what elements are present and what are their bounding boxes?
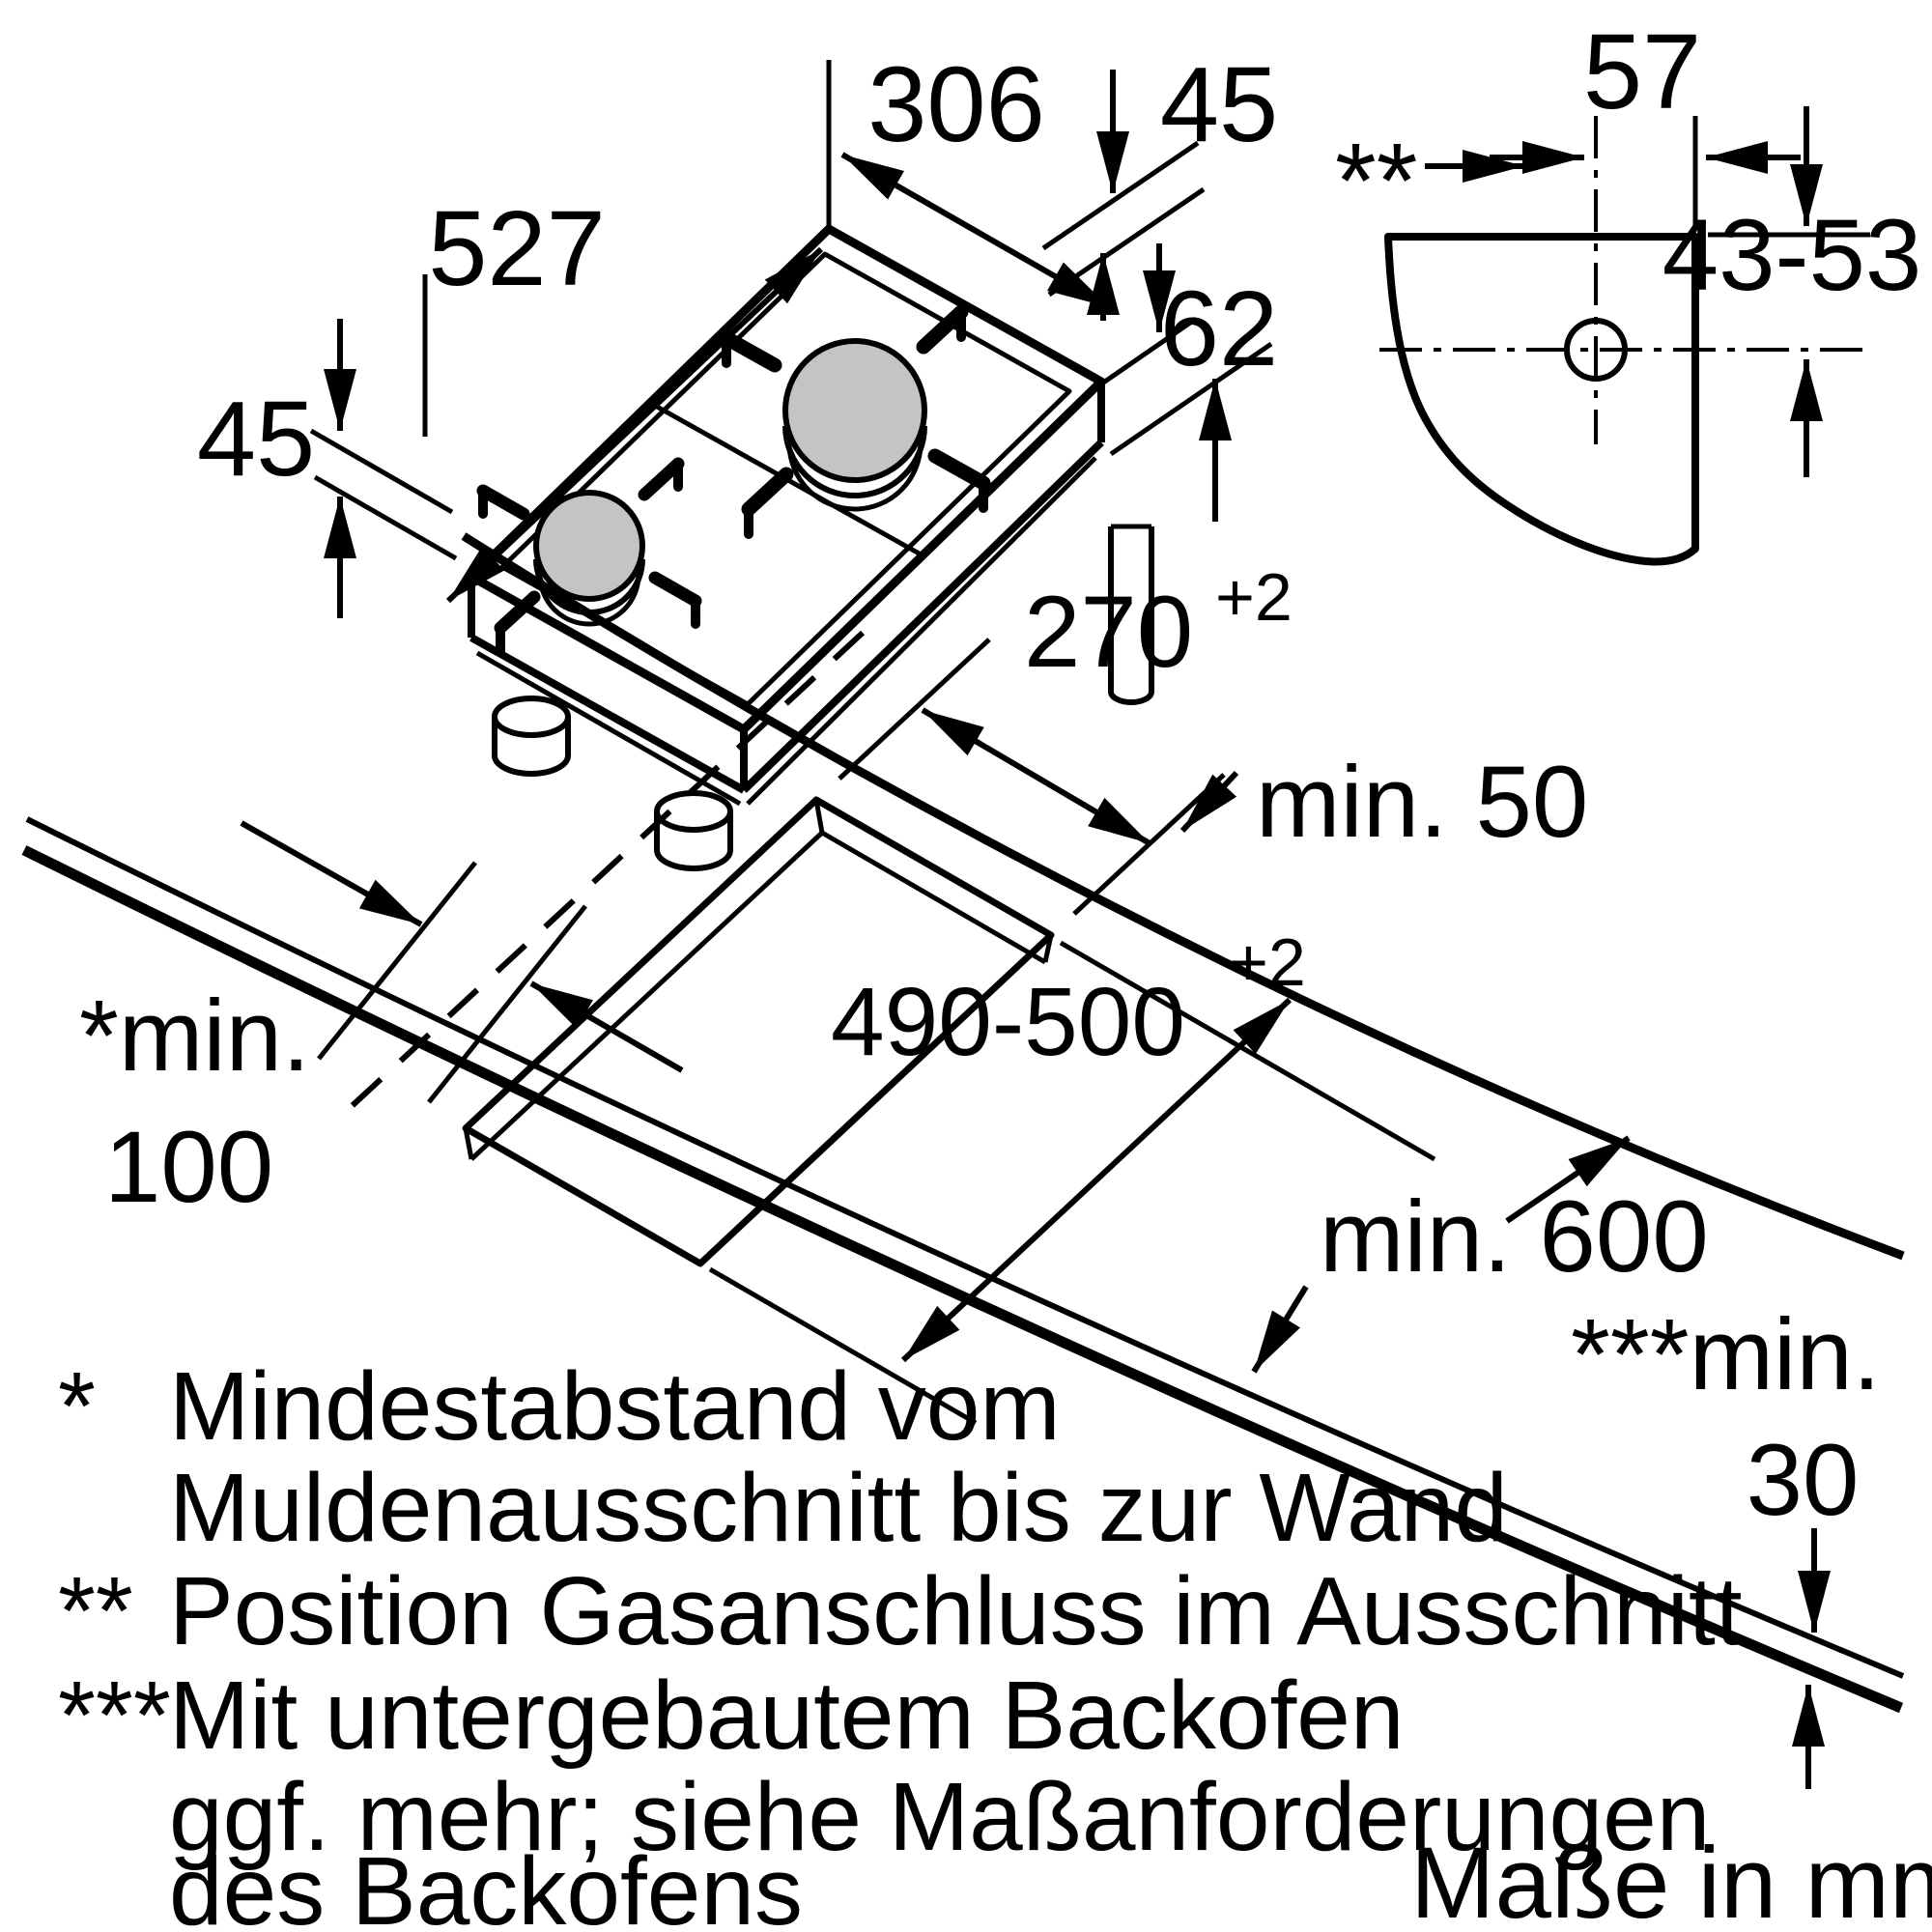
footnote-marker: *** [58, 1662, 171, 1770]
arrow-right-down [241, 823, 421, 924]
footnote-text: Mit untergebautem Backofen [169, 1662, 1405, 1770]
burner-small [536, 493, 642, 599]
clearance-wall-label: *min. [79, 980, 310, 1093]
dim-45-left-label: 45 [197, 380, 315, 498]
oven-clearance-label: ***min. [1571, 1298, 1881, 1411]
oven-clearance-value: 30 [1747, 1424, 1860, 1537]
gas-position-marker: ** [1335, 122, 1418, 241]
dim-490-500-label: 490-500 [831, 968, 1185, 1076]
dim-45-top-label: 45 [1160, 45, 1278, 164]
arrow-down-left [1254, 1287, 1306, 1372]
footnote-marker: * [58, 1352, 96, 1461]
cutout-inner-wall [471, 833, 822, 1159]
worktop-depth-label: min. 600 [1320, 1180, 1709, 1293]
reference-line [315, 477, 456, 558]
footnote-text: Position Gasanschluss im Ausschnitt [169, 1557, 1743, 1665]
footnote-text: des Backofens [169, 1837, 803, 1932]
dim-57-label: 57 [1583, 13, 1701, 131]
reference-line [1043, 143, 1198, 248]
control-knob [495, 698, 568, 774]
extension-line [1074, 775, 1224, 914]
cutout-corner-panel [1388, 237, 1695, 561]
dim-306-label: 306 [867, 45, 1045, 164]
footnote-text: Mindestabstand vom [169, 1352, 1061, 1461]
gas-connection-detail: 57 ** 43-53 [1335, 13, 1921, 561]
arrow-down-left [1182, 773, 1236, 831]
extension-line [839, 639, 989, 779]
dim-490-500-tolerance: +2 [1229, 924, 1306, 1000]
hob-dimensions: 306 45 62 527 45 [197, 45, 1278, 618]
dim-43-53-label: 43-53 [1662, 199, 1922, 312]
clearance-wall-value: 100 [104, 1111, 273, 1224]
dim-62-label: 62 [1160, 270, 1278, 388]
reference-line [311, 431, 452, 512]
burner-large [785, 341, 924, 480]
dim-270-label: 270 [1024, 576, 1193, 689]
hob-drawing [471, 229, 1151, 868]
dim-270-tolerance: +2 [1215, 559, 1293, 635]
footnote-text: Muldenausschnitt bis zur Wand [169, 1454, 1508, 1562]
installation-diagram: 306 45 62 527 45 57 ** 43-53 [0, 0, 1932, 1932]
units-note: Maße in mm [1410, 1827, 1932, 1932]
clearance-min50-label: min. 50 [1256, 746, 1588, 859]
footnote-marker: ** [58, 1557, 133, 1665]
control-knob [657, 793, 730, 868]
dim-527-label: 527 [428, 189, 606, 308]
